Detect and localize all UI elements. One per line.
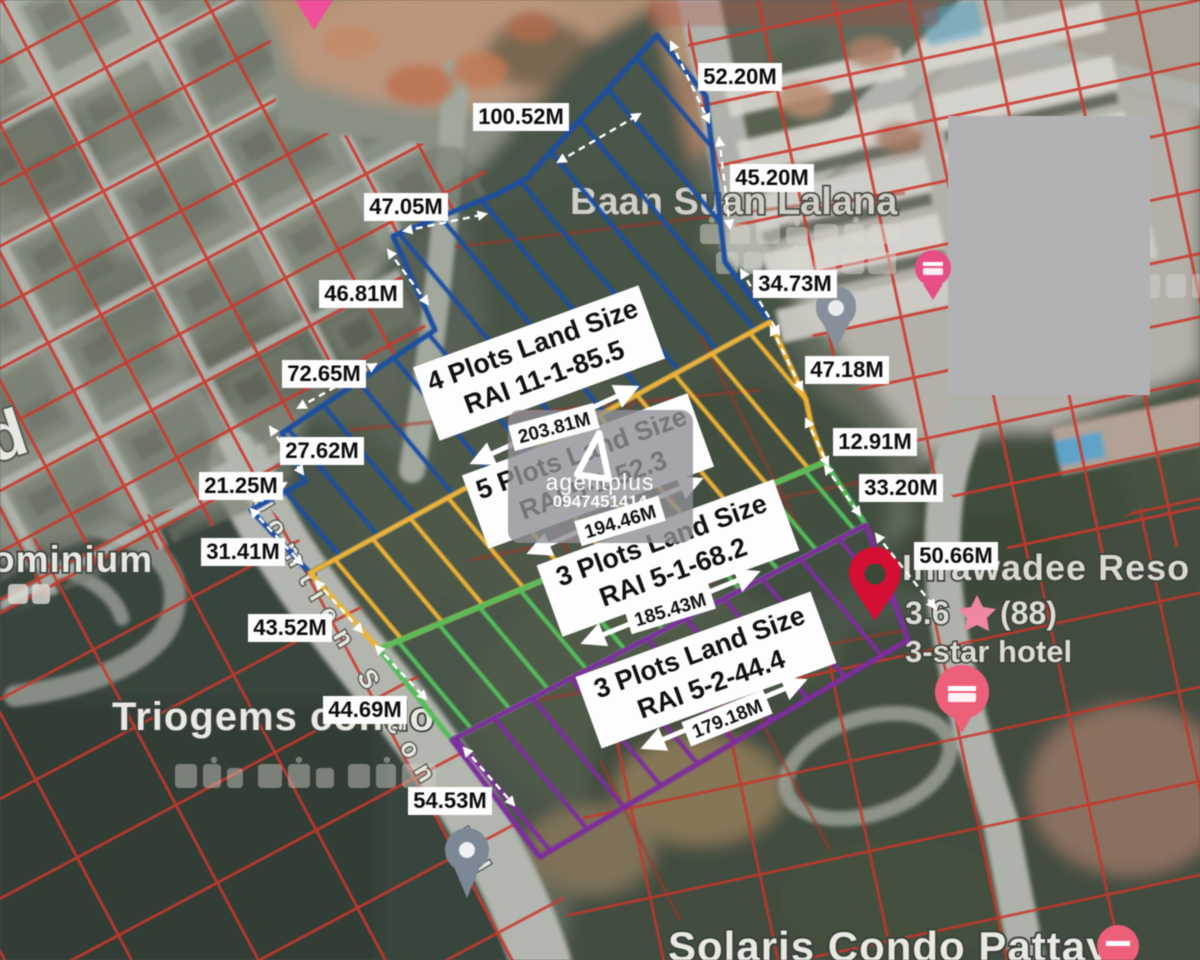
svg-text:3-star hotel: 3-star hotel [905,634,1072,669]
svg-text:52.20M: 52.20M [703,64,776,89]
svg-text:ominium: ominium [0,539,153,580]
svg-text:(88): (88) [1000,595,1057,631]
svg-text:12.91M: 12.91M [838,429,911,454]
svg-text:33.20M: 33.20M [864,475,937,500]
svg-text:100.52M: 100.52M [478,104,564,129]
svg-text:47.18M: 47.18M [810,357,883,382]
svg-text:50.66M: 50.66M [919,543,992,568]
svg-text:34.73M: 34.73M [758,271,831,296]
svg-text:46.81M: 46.81M [324,281,397,306]
svg-text:3.6: 3.6 [905,595,949,631]
svg-text:21.25M: 21.25M [204,473,277,498]
svg-text:44.69M: 44.69M [328,697,401,722]
svg-text:43.52M: 43.52M [253,615,326,640]
svg-text:27.62M: 27.62M [285,438,358,463]
svg-text:Solaris Condo Pattaya: Solaris Condo Pattaya [668,923,1135,960]
svg-text:31.41M: 31.41M [206,539,279,564]
svg-text:72.65M: 72.65M [287,361,360,386]
svg-text:45.20M: 45.20M [735,165,808,190]
svg-text:47.05M: 47.05M [369,194,442,219]
svg-text:54.53M: 54.53M [413,788,486,813]
